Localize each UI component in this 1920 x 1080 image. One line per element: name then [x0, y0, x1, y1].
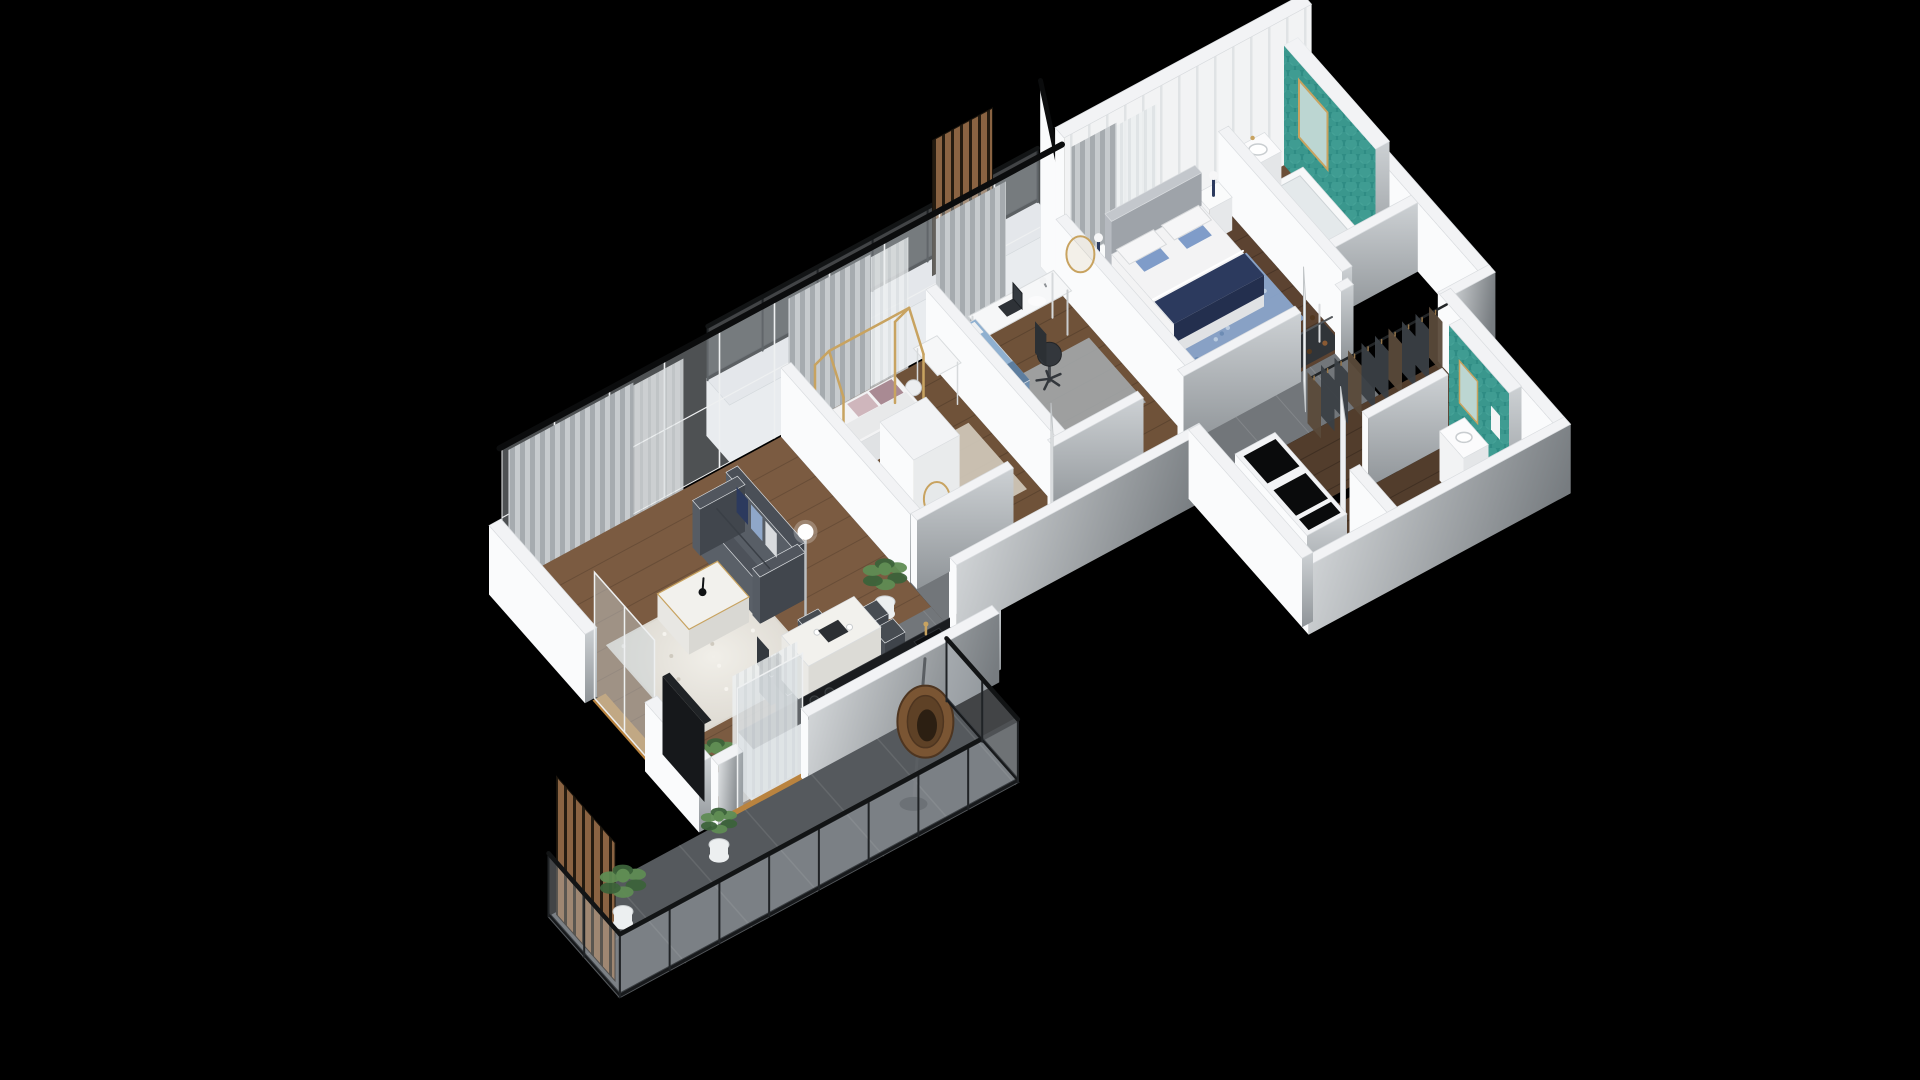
render-viewport — [0, 0, 1920, 1080]
apartment-3d-floorplan — [0, 0, 1920, 1080]
